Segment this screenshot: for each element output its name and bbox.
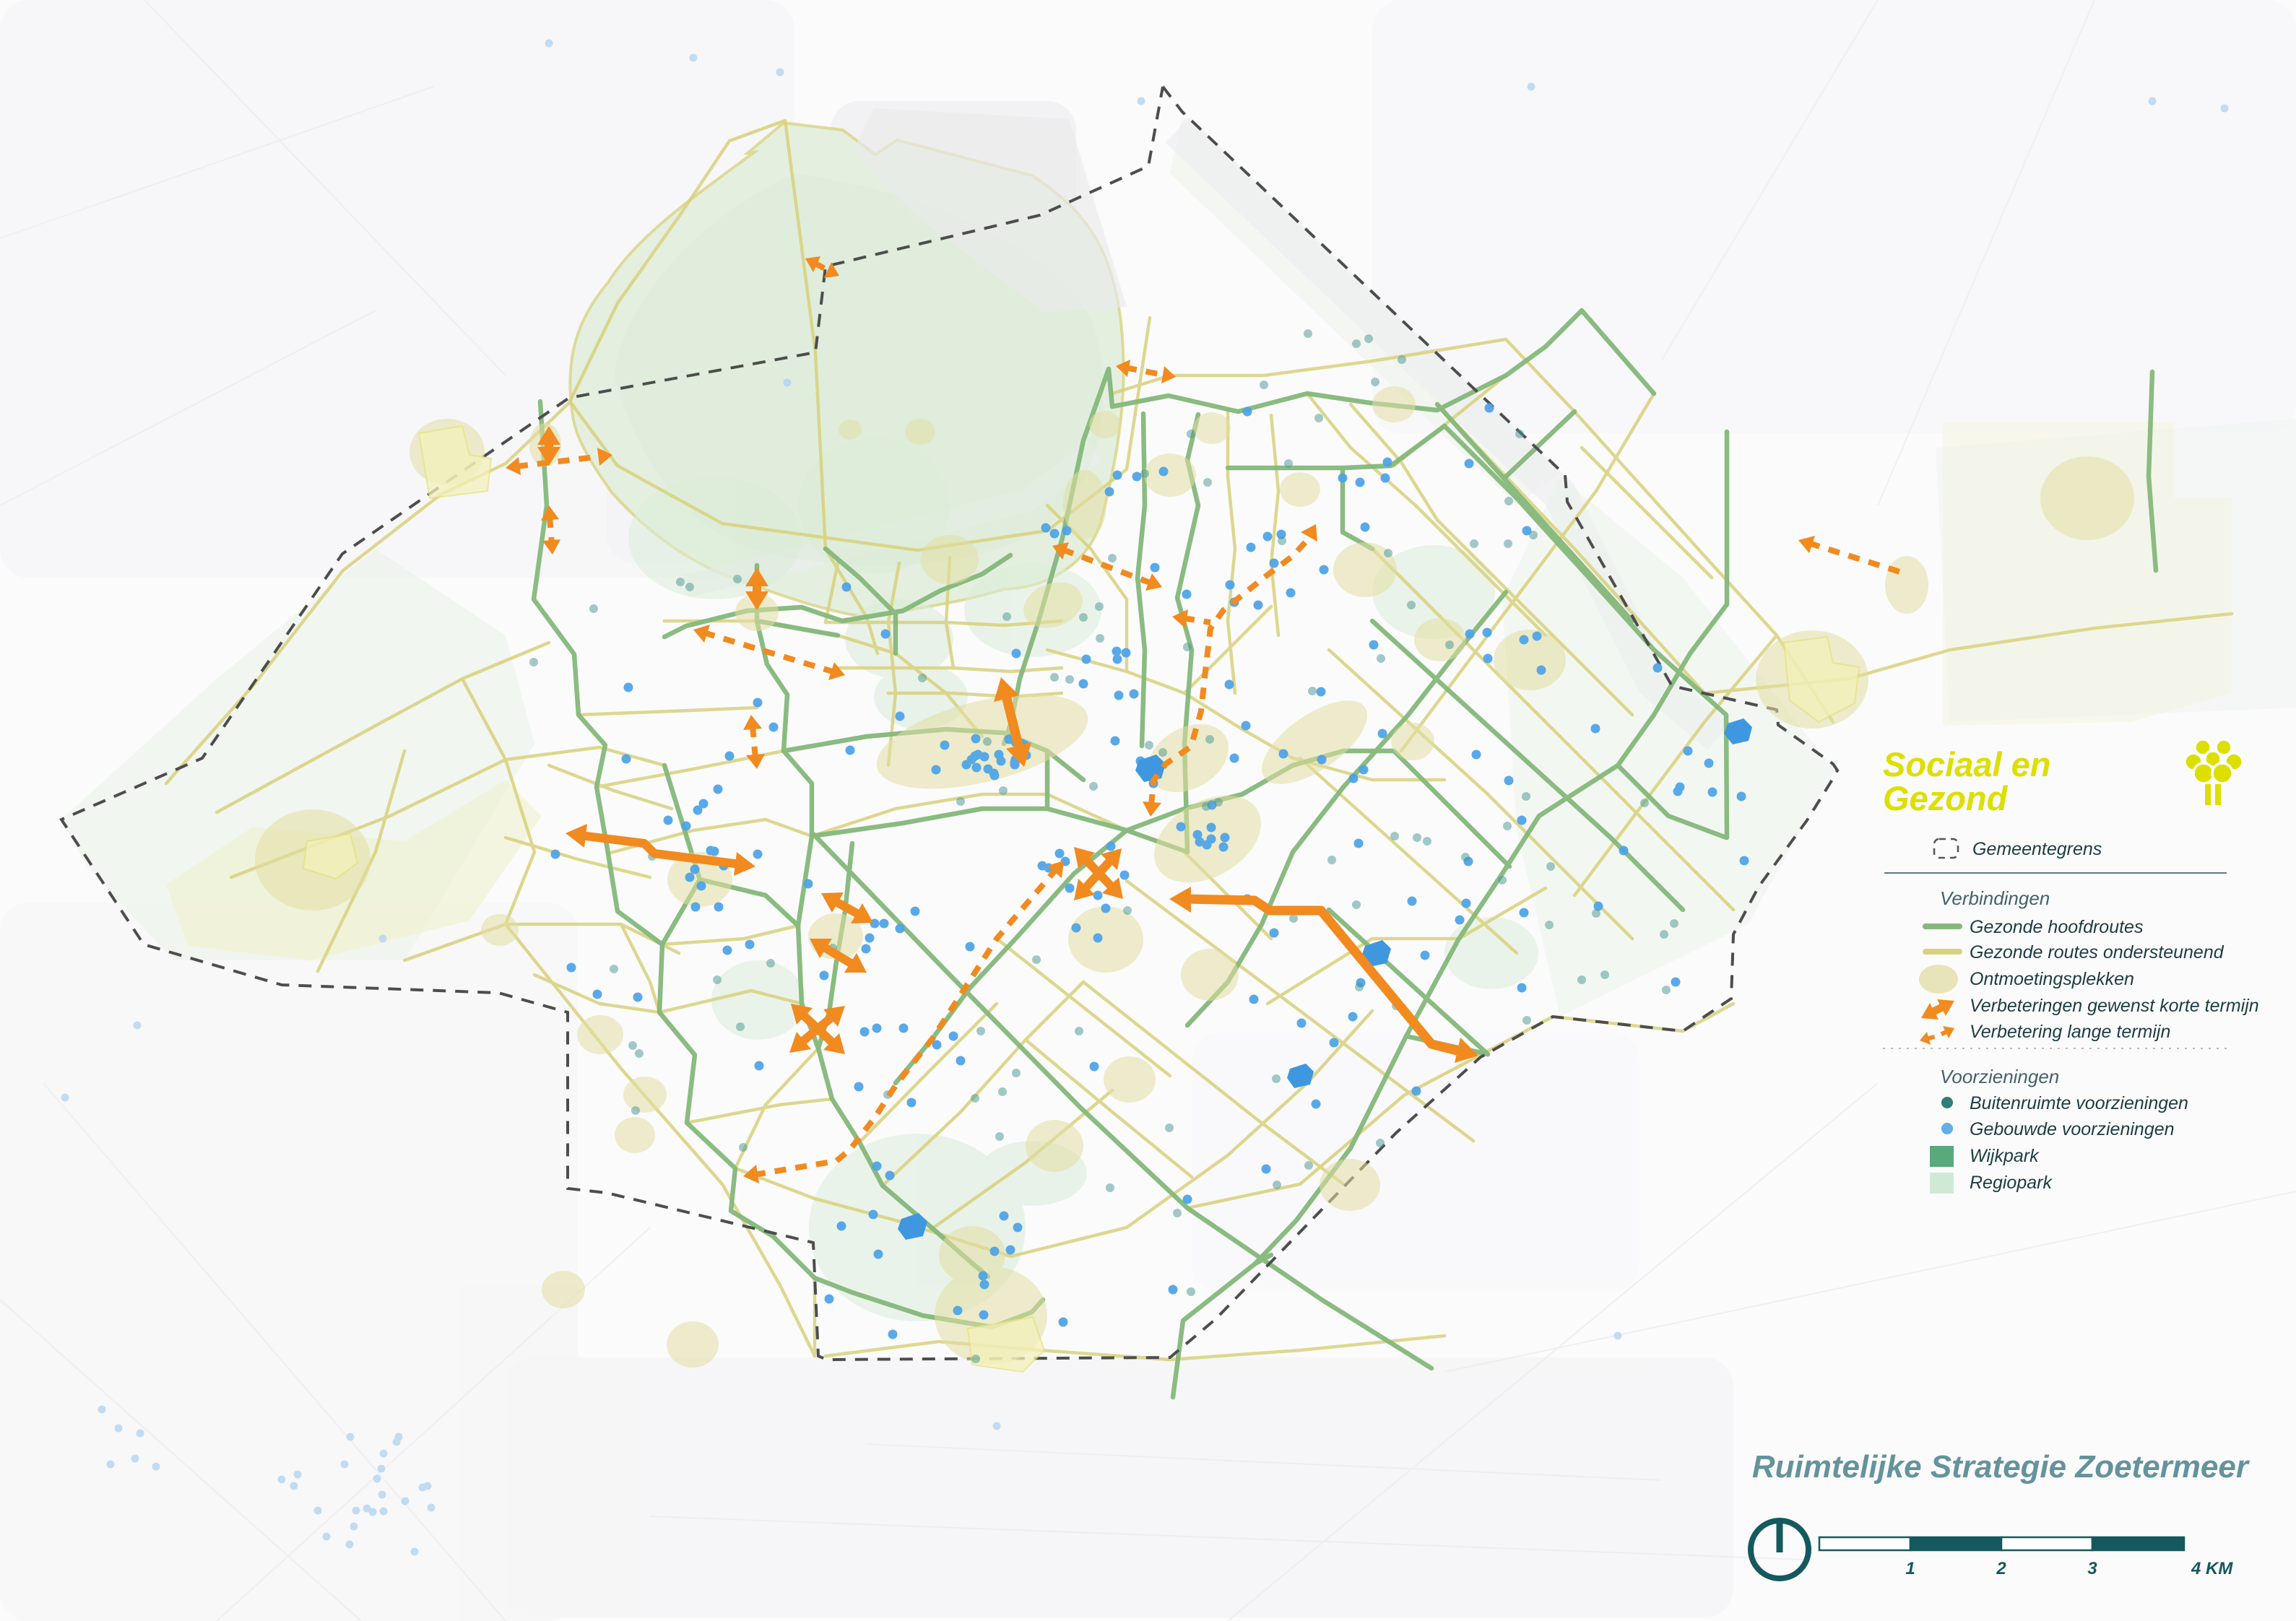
- svg-text:4 KM: 4 KM: [2191, 1559, 2233, 1578]
- svg-text:Verbetering lange termijn: Verbetering lange termijn: [1970, 1022, 2170, 1042]
- svg-text:Verbindingen: Verbindingen: [1940, 887, 2050, 909]
- svg-text:1: 1: [1905, 1559, 1915, 1578]
- svg-text:Gezonde routes ondersteunend: Gezonde routes ondersteunend: [1970, 942, 2224, 962]
- svg-text:Verbeteringen gewenst korte te: Verbeteringen gewenst korte termijn: [1970, 996, 2259, 1016]
- svg-text:Voorzieningen: Voorzieningen: [1940, 1066, 2059, 1087]
- svg-text:Ontmoetingsplekken: Ontmoetingsplekken: [1970, 969, 2134, 989]
- svg-text:Ruimtelijke Strategie Zoeterme: Ruimtelijke Strategie Zoetermeer: [1752, 1449, 2250, 1485]
- svg-text:Gemeentegrens: Gemeentegrens: [1972, 839, 2102, 859]
- svg-text:Sociaal en: Sociaal en: [1883, 745, 2051, 783]
- svg-text:Wijkpark: Wijkpark: [1970, 1146, 2040, 1166]
- svg-text:Regiopark: Regiopark: [1970, 1173, 2053, 1193]
- svg-text:3: 3: [2087, 1559, 2097, 1578]
- svg-text:Buitenruimte voorzieningen: Buitenruimte voorzieningen: [1970, 1093, 2188, 1113]
- svg-text:Gezonde hoofdroutes: Gezonde hoofdroutes: [1970, 917, 2143, 937]
- svg-text:Gezond: Gezond: [1883, 779, 2009, 817]
- svg-text:Gebouwde voorzieningen: Gebouwde voorzieningen: [1970, 1119, 2175, 1139]
- svg-text:2: 2: [1996, 1559, 2006, 1578]
